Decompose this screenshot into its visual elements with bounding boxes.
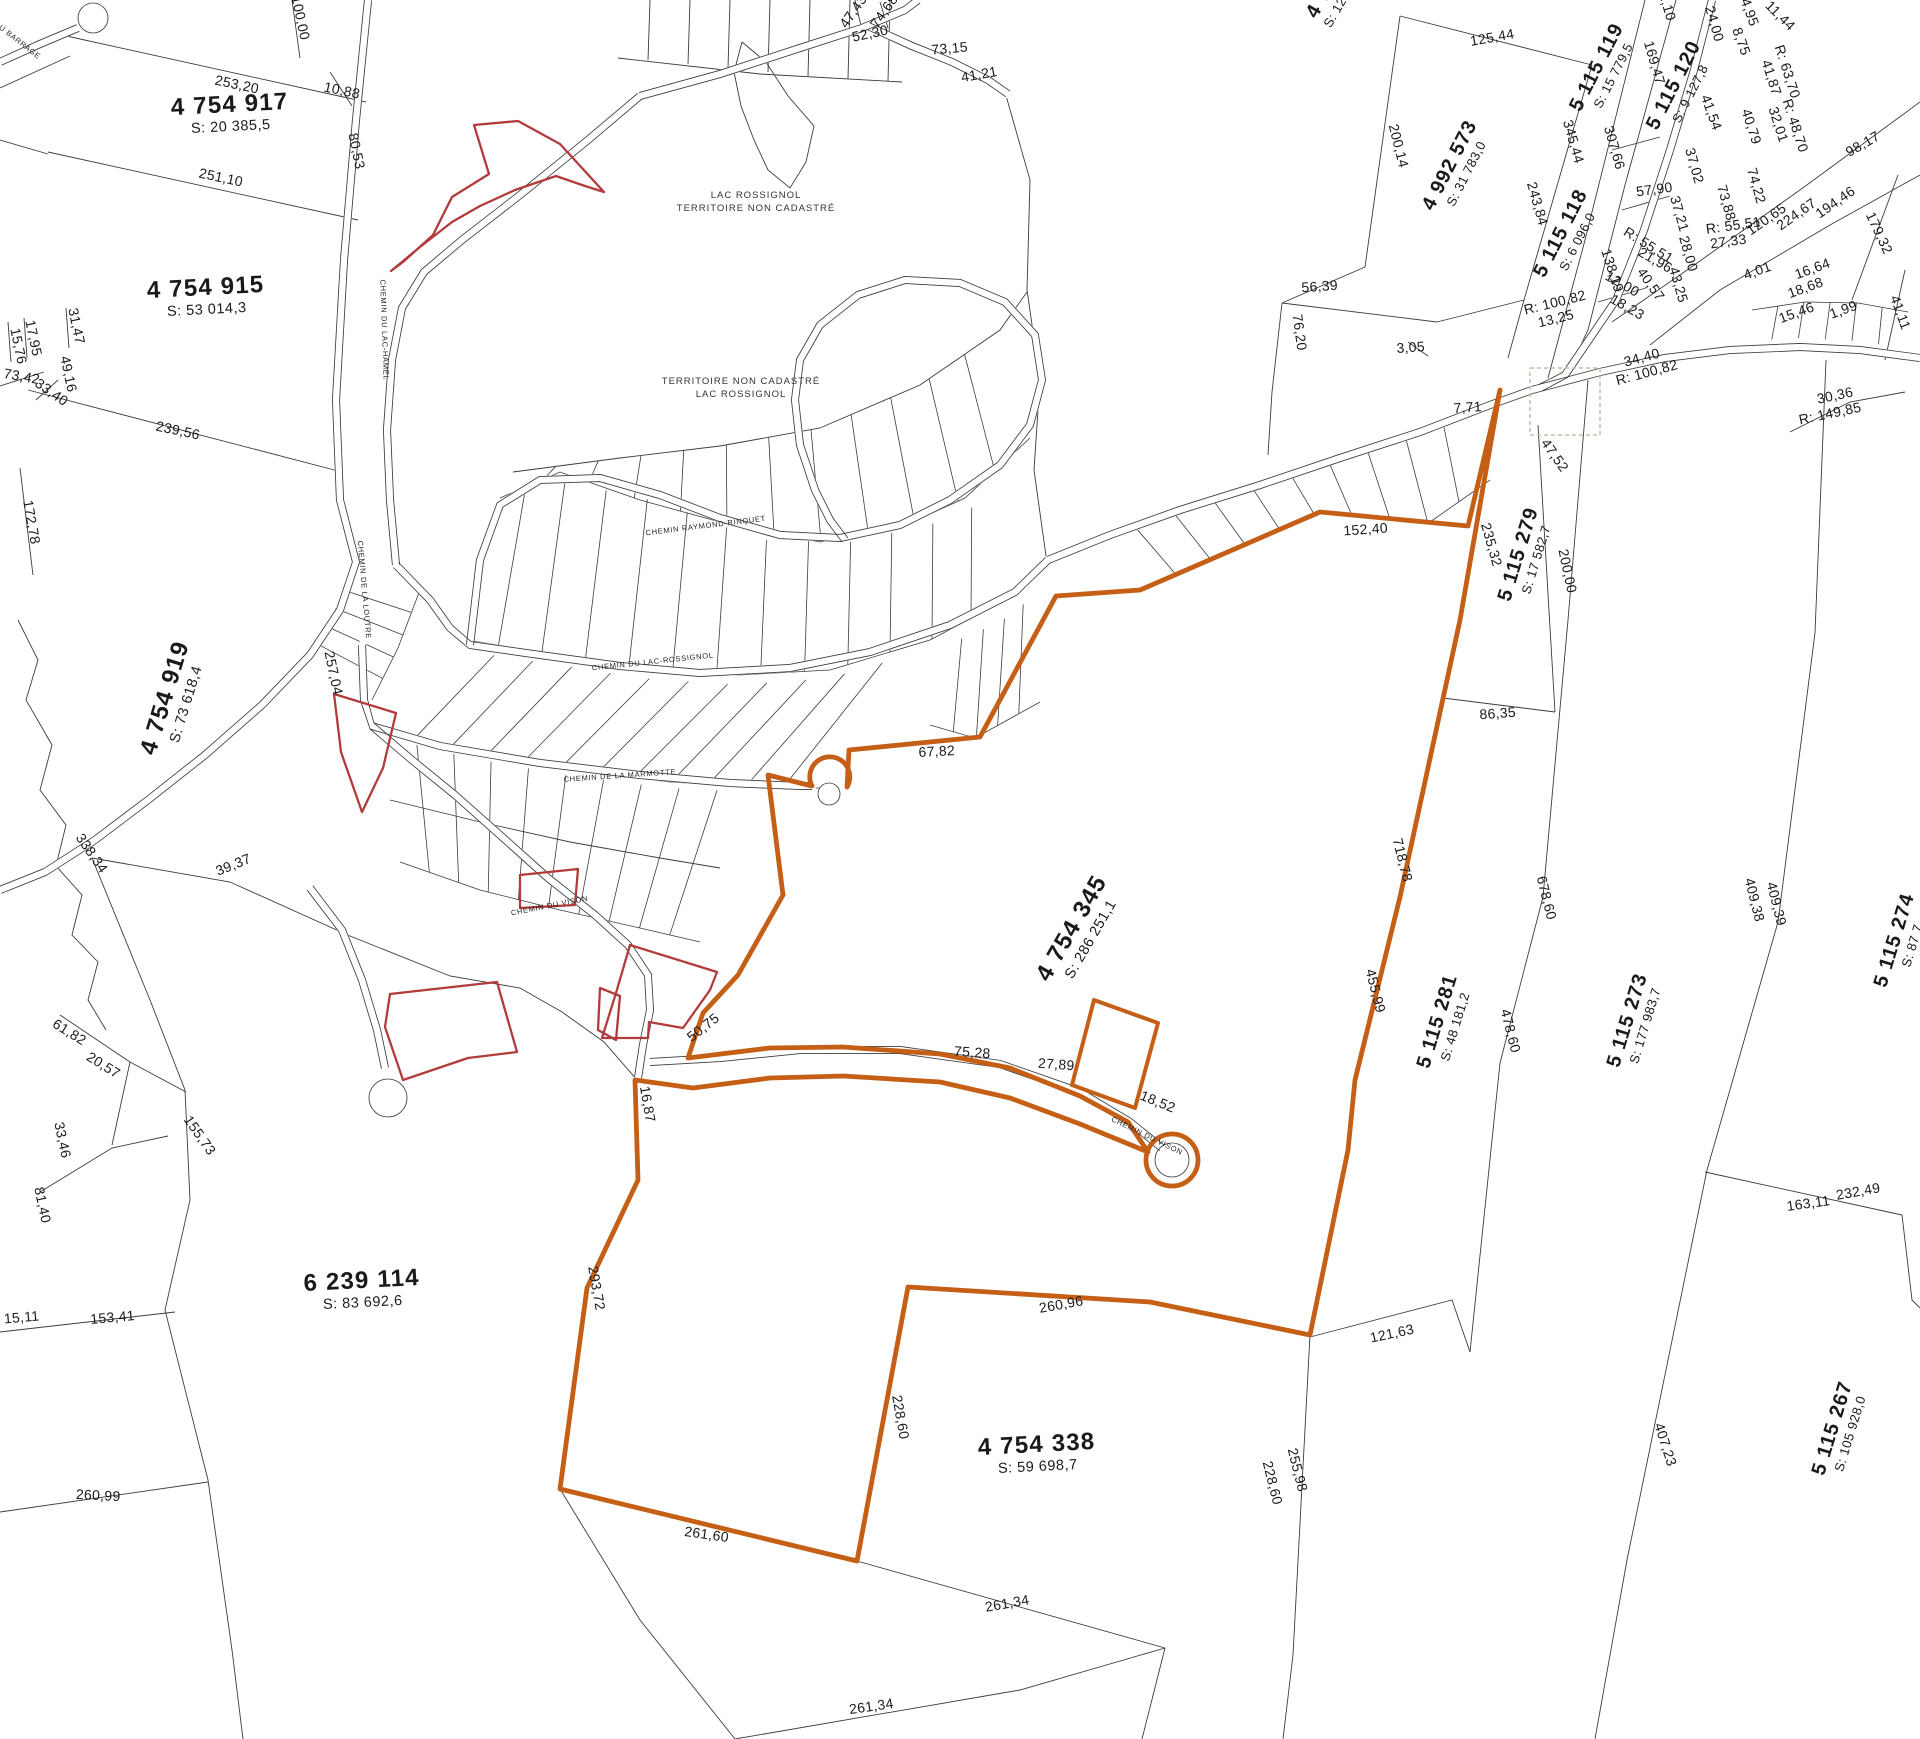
parcel-tick xyxy=(929,379,958,501)
parcel-tick xyxy=(976,629,983,737)
parcel-tick xyxy=(971,508,972,619)
measurement-label: 7,71 xyxy=(1453,398,1482,416)
measurement-label: 15,11 xyxy=(3,1308,40,1327)
measurement-label: 98,17 xyxy=(1843,128,1883,160)
measurement-label: 163,11 xyxy=(1786,1192,1831,1214)
lot-label-4-754-338: 4 754 338S: 59 698,7 xyxy=(977,1428,1097,1478)
parcel-tick xyxy=(890,533,892,652)
measurement-label: 40,79 xyxy=(1739,107,1766,147)
measurement-label: 455,99 xyxy=(1363,967,1389,1014)
parcel-tick xyxy=(1289,472,1315,515)
parcel-tick xyxy=(1251,486,1280,529)
measurement-label: 179,32 xyxy=(1863,209,1896,256)
lot-area: S: 53 014,3 xyxy=(167,300,247,320)
red-parcel-outline xyxy=(385,982,517,1080)
parcel-tick xyxy=(998,619,1005,726)
parcel-tick xyxy=(1405,434,1428,522)
measurement-label: 678,60 xyxy=(1534,874,1560,921)
territory-note-line2: LAC ROSSIGNOL xyxy=(696,389,787,400)
road-edge xyxy=(307,890,381,1069)
measurement-label: 11,44 xyxy=(1762,0,1798,34)
road-name-label: CHEMIN DU LAC-HAMEL xyxy=(378,279,391,380)
measurement-label: 15,46 xyxy=(1776,299,1816,327)
road-fill xyxy=(0,0,368,890)
lot-label-5-115-267: 5 115 267S: 105 928,0 xyxy=(1808,1379,1872,1482)
measurement-label: 27,89 xyxy=(1038,1055,1076,1074)
measurement-label: 3,05 xyxy=(1396,338,1425,356)
parcel-tick xyxy=(1175,515,1209,559)
parcel-tick xyxy=(414,655,494,738)
parcel-line xyxy=(18,620,106,1030)
parcel-tick xyxy=(542,481,565,652)
measurement-label: 172,78 xyxy=(20,499,44,546)
parcel-tick xyxy=(851,415,868,534)
parcel-tick xyxy=(717,527,727,673)
highlight-boundary-layer xyxy=(560,390,1500,1561)
measurement-label: 260,99 xyxy=(76,1486,121,1504)
lot-label-5-115-274: 5 115 274S: 87 7 xyxy=(1870,891,1920,994)
parcel-tick xyxy=(1366,447,1390,519)
measurement-label: 2,10 xyxy=(1656,0,1679,23)
measurement-label: 56,39 xyxy=(1301,277,1339,296)
red-parcels-layer xyxy=(334,121,717,1080)
lot-area: S: 59 698,7 xyxy=(998,1457,1078,1477)
measurement-label: 37,02 xyxy=(1682,146,1707,186)
lot-label-4-754-919: 4 754 919S: 73 618,4 xyxy=(135,638,211,763)
measurement-label: 125,44 xyxy=(1469,25,1516,49)
parcel-line xyxy=(92,858,637,1080)
parcel-tick xyxy=(761,540,767,674)
measurement-label: 75,28 xyxy=(954,1043,992,1062)
lot-label-4-992-573: 4 992 573S: 31 783,0 xyxy=(1418,117,1495,221)
lot-area: S: 20 385,5 xyxy=(191,117,271,137)
parcel-tick xyxy=(783,663,883,788)
measurement-label: 228,60 xyxy=(1260,1459,1286,1506)
parcel-tick xyxy=(805,541,809,671)
measurement-label: 61,82 xyxy=(50,1015,89,1048)
parcel-line xyxy=(728,0,730,68)
parcel-line xyxy=(1283,1335,1310,1739)
measurement-label: 307,66 xyxy=(1601,124,1629,171)
measurement-label: 86,35 xyxy=(1479,704,1517,723)
lot-area: S: 83 692,6 xyxy=(323,1293,403,1313)
measurement-label: 478,60 xyxy=(1498,1007,1524,1054)
parcel-line xyxy=(1140,480,1490,588)
lot-label-5-115-273: 5 115 273S: 177 983,7 xyxy=(1603,971,1667,1074)
parcel-tick xyxy=(639,788,679,927)
territory-note-line2: TERRITOIRE NON CADASTRÉ xyxy=(677,203,835,214)
measurement-label: 153,41 xyxy=(90,1307,136,1327)
parcel-line xyxy=(60,1015,186,1092)
measurement-label: 261,34 xyxy=(984,1591,1031,1615)
parcel-tick xyxy=(524,673,611,761)
parcel-line xyxy=(808,0,810,76)
road-name-label: CHEMIN DE LA LOUTRE xyxy=(356,540,374,639)
cadastral-plan-svg: 253,2010,88100,00251,1080,53239,56172,78… xyxy=(0,0,1920,1739)
measurement-label: 235,32 xyxy=(1478,521,1506,568)
parcel-line xyxy=(1595,1170,1707,1739)
measurement-label: 73,15 xyxy=(931,38,969,57)
parcel-tick xyxy=(965,354,995,470)
lot-number: 4 754 917 xyxy=(170,88,289,121)
parcel-line xyxy=(48,152,358,220)
lot-number: 4 754 915 xyxy=(146,271,265,304)
parcel-tick xyxy=(498,492,525,645)
measurement-label: 255,98 xyxy=(1285,1446,1311,1493)
parcel-line xyxy=(1268,303,1282,455)
territory-note-line1: LAC ROSSIGNOL xyxy=(711,190,802,201)
measurement-label: 18,52 xyxy=(1138,1087,1178,1116)
measurement-label: 257,04 xyxy=(321,649,346,696)
lot-label-4-754-917: 4 754 917S: 20 385,5 xyxy=(170,88,290,138)
parcel-tick xyxy=(1213,500,1245,544)
measurement-label: 409,39 xyxy=(1764,880,1790,927)
parcel-tick xyxy=(560,679,649,769)
parcel-line xyxy=(1902,1215,1920,1308)
parcel-line xyxy=(1437,300,1524,322)
measurement-label: 33,46 xyxy=(51,1120,74,1159)
measurement-label: 16,87 xyxy=(637,1085,659,1124)
measurement-label: 407,23 xyxy=(1651,1421,1680,1468)
measurement-label: 76,20 xyxy=(1289,313,1310,351)
parcel-line xyxy=(735,1648,1165,1739)
measurement-label: 47,52 xyxy=(1538,436,1572,475)
road-edge xyxy=(650,1054,1160,1151)
measurement-label: 194,46 xyxy=(1812,183,1858,222)
parcel-line xyxy=(1142,1648,1165,1739)
lot-label-4-754-915: 4 754 915S: 53 014,3 xyxy=(146,271,266,321)
measurement-label: 24,95 xyxy=(1735,0,1763,28)
parcel-tick xyxy=(891,398,915,522)
measurement-label: 74,22 xyxy=(1744,166,1769,206)
parcel-tick xyxy=(746,674,845,787)
parcel-tick xyxy=(1878,307,1882,344)
parcel-tick xyxy=(487,667,572,755)
parcel-line xyxy=(688,0,690,64)
parcel-tick xyxy=(932,524,933,639)
measurement-label: 155,73 xyxy=(181,1112,220,1158)
parcel-tick xyxy=(726,445,727,524)
lot-number: 4 754 338 xyxy=(977,1428,1096,1461)
parcel-tick xyxy=(634,684,727,778)
lot-label-4-754-345: 4 754 345S: 286 251,1 xyxy=(1030,871,1127,995)
measurement-label: 152,40 xyxy=(1343,519,1389,538)
road-edge xyxy=(474,276,1046,645)
measurement-label: 261,34 xyxy=(848,1695,894,1717)
territory-note: LAC ROSSIGNOLTERRITOIRE NON CADASTRÉ xyxy=(677,190,835,214)
cadastral-map-canvas: 253,2010,88100,00251,1080,53239,56172,78… xyxy=(0,0,1920,1739)
lot-label-4-7: 4 7S: 12 xyxy=(1301,0,1349,30)
measurement-label: 121,63 xyxy=(1368,1321,1415,1346)
red-parcel-outline xyxy=(391,121,604,271)
parcel-tick xyxy=(953,639,961,732)
road-fill xyxy=(310,888,385,1068)
highlighted-lot-boundary xyxy=(560,390,1500,1561)
parcel-tick xyxy=(629,499,647,666)
parcel-tick xyxy=(454,754,459,882)
measurement-label: 41,11 xyxy=(1887,293,1914,332)
measurement-label: 67,82 xyxy=(918,742,955,760)
road-edge xyxy=(1,0,371,893)
parcel-tick xyxy=(1138,530,1175,573)
lot-label-5-115-119: 5 115 119S: 15 779,5 xyxy=(1565,20,1641,122)
parcel-tick xyxy=(671,683,767,782)
measurement-label: 243,84 xyxy=(1524,180,1552,227)
parcel-tick xyxy=(450,661,532,747)
measurement-label: 52,30 xyxy=(850,21,889,44)
lot-label-6-239-114: 6 239 114S: 83 692,6 xyxy=(303,1264,421,1314)
measurement-label: 39,37 xyxy=(213,850,253,879)
measurement-label: 251,10 xyxy=(198,165,245,190)
measurement-label: 239,56 xyxy=(155,418,202,443)
road-fill xyxy=(470,280,1042,645)
parcel-tick xyxy=(708,680,806,784)
parcel-tick xyxy=(769,437,774,533)
measurement-label: 228,60 xyxy=(889,1394,913,1441)
parcel-line xyxy=(92,858,243,1739)
parcel-tick xyxy=(597,681,688,773)
measurement-label: 8,75 xyxy=(1729,25,1754,57)
parcel-line xyxy=(0,140,48,154)
territory-note-line1: TERRITOIRE NON CADASTRÉ xyxy=(662,376,820,387)
lot-number: 6 239 114 xyxy=(303,1264,421,1297)
parcel-tick xyxy=(1328,459,1352,515)
parcel-tick xyxy=(1442,419,1459,502)
lot-label-5-115-281: 5 115 281S: 48 181,2 xyxy=(1413,972,1477,1075)
parcel-line xyxy=(648,0,650,60)
subdivision-parcel-ticks xyxy=(316,302,1908,942)
measurement-label: 4,01 xyxy=(1741,258,1773,283)
parcel-tick xyxy=(585,490,606,659)
parcel-tick xyxy=(670,790,717,935)
measurement-label: 41,54 xyxy=(1698,92,1726,132)
measurement-label: 232,49 xyxy=(1835,1179,1882,1203)
road-edge xyxy=(0,0,364,887)
parcel-tick xyxy=(673,512,688,670)
parcel-tick xyxy=(344,590,412,612)
parcel-line xyxy=(372,590,420,700)
measurement-label: 81,40 xyxy=(31,1185,54,1224)
parcel-tick xyxy=(609,785,641,922)
parcel-tick xyxy=(848,542,851,665)
measurement-label: 100,00 xyxy=(288,0,313,41)
measurement-label: 200,14 xyxy=(1386,122,1412,169)
parcel-line xyxy=(1707,360,1826,1170)
measurement-label: 345,44 xyxy=(1560,118,1588,165)
road-edge xyxy=(466,284,1038,645)
measurement-label: 200,00 xyxy=(1555,547,1580,594)
measurement-label: 37,21 xyxy=(1667,194,1692,234)
